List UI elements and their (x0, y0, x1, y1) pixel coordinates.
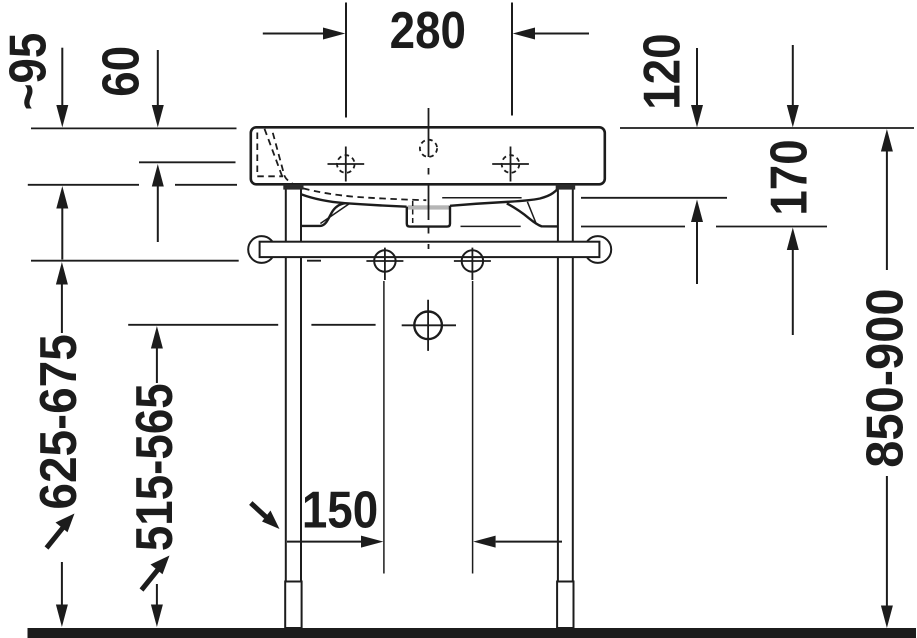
svg-text:170: 170 (761, 139, 818, 215)
svg-text:~95: ~95 (0, 33, 57, 111)
svg-text:150: 150 (302, 482, 378, 539)
svg-text:120: 120 (634, 33, 691, 109)
svg-text:850-900: 850-900 (855, 288, 914, 467)
svg-text:515-565: 515-565 (126, 383, 183, 551)
svg-text:60: 60 (93, 46, 150, 97)
svg-text:625-675: 625-675 (29, 334, 87, 510)
svg-text:280: 280 (390, 3, 466, 60)
